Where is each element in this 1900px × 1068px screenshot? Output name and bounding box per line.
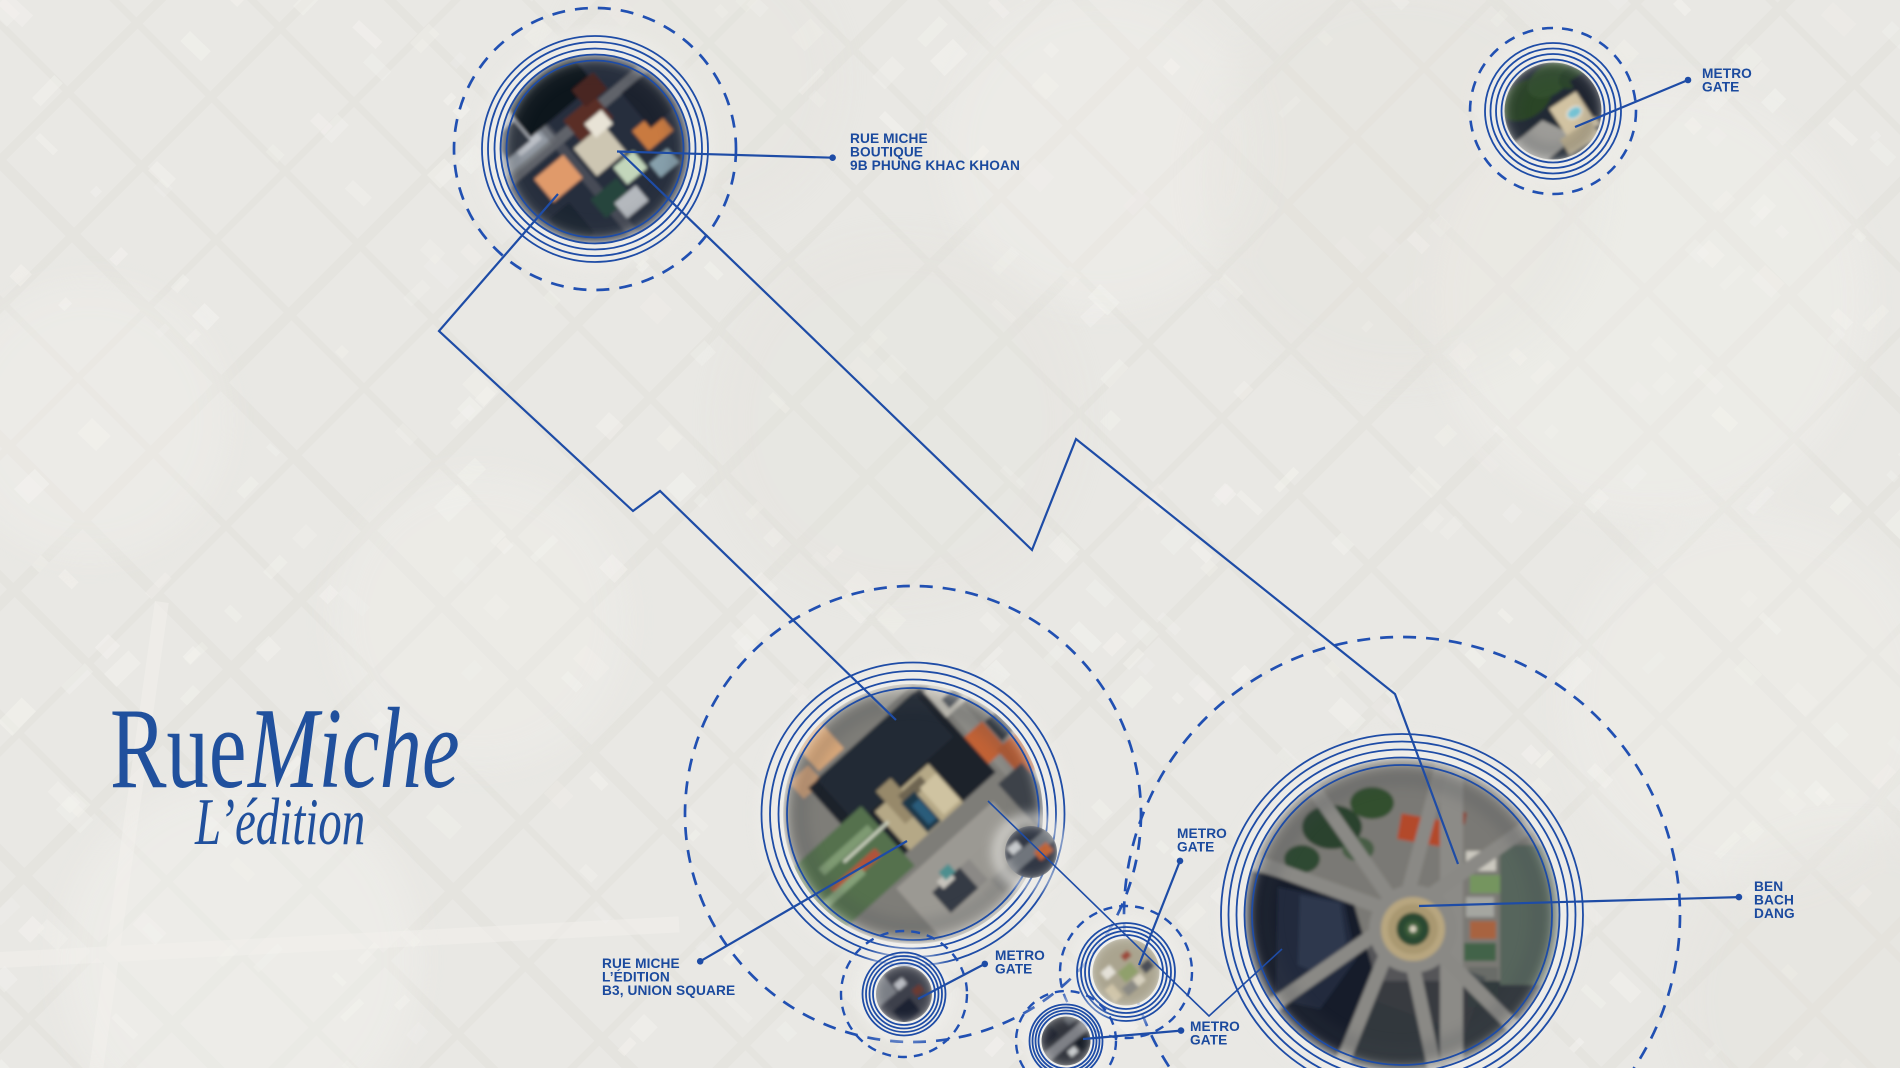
svg-text:L’édition: L’édition <box>194 784 365 859</box>
